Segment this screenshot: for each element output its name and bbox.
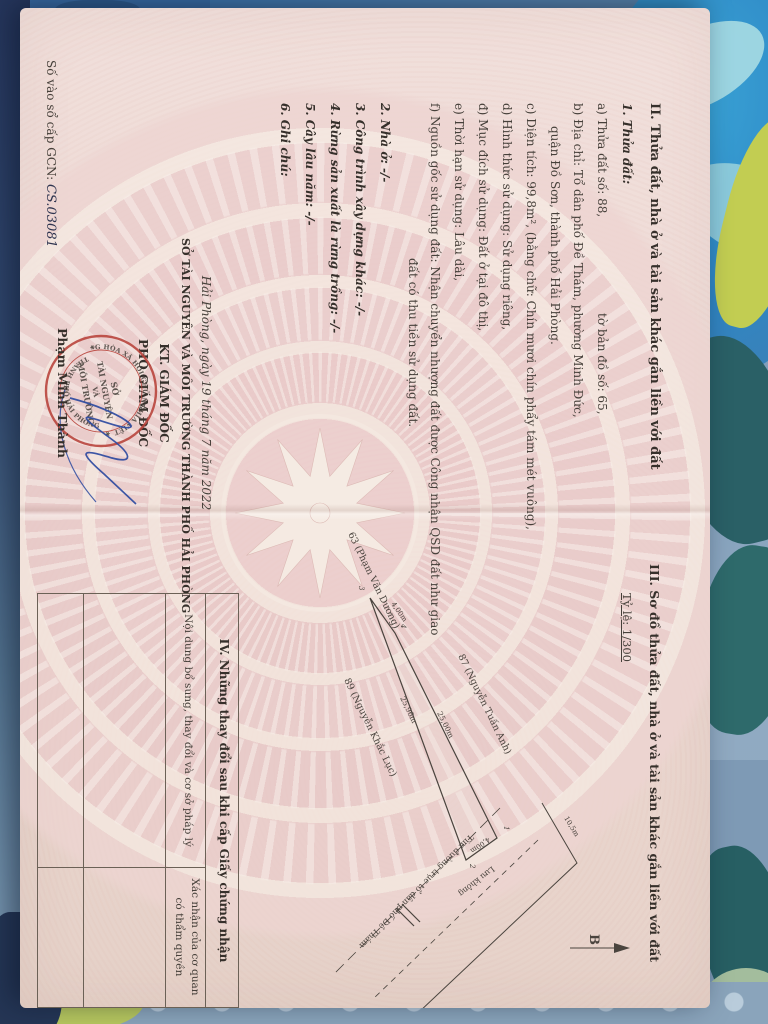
section-ii-heading: II. Thửa đất, nhà ở và tài sản khác gắn … <box>647 103 662 470</box>
north-arrow-icon: B <box>570 934 630 953</box>
area-line: c) Diện tích: 99,8m², (bằng chữ: Chín mư… <box>524 103 538 530</box>
reserve-strip-label: Lưu không <box>457 864 497 898</box>
photo-of-certificate: II. Thửa đất, nhà ở và tài sản khác gắn … <box>0 0 768 1024</box>
gcn-number-line: Số vào sổ cấp GCN: CS.03081 <box>43 60 58 248</box>
table-col2-header-line2: có thẩm quyền <box>173 869 185 1005</box>
table-line <box>165 594 166 1007</box>
neighbor-89-label: 89 (Nguyễn Khắc Lục) <box>341 676 399 779</box>
road-boundary-line <box>418 803 577 1008</box>
item-6-notes: 6. Ghi chú: <box>278 103 292 177</box>
gcn-number-label: Số vào sổ cấp GCN: <box>44 60 58 180</box>
item-2-house: 2. Nhà ở: -/- <box>378 103 392 182</box>
vertex-1-label: 1 <box>502 826 510 830</box>
table-col1-header: Nội dung bổ sung, thay đổi và cơ sở pháp… <box>182 598 194 863</box>
item-3-constructions: 3. Công trình xây dựng khác: -/- <box>353 103 367 316</box>
item-1-title: 1. Thửa đất: <box>620 103 634 184</box>
changes-table: IV. Những thay đổi sau khi cấp Giấy chứn… <box>37 593 239 1008</box>
neighbor-63-label: 63 (Phạm Văn Dương) <box>345 530 401 630</box>
parcel-polygon <box>370 598 497 860</box>
use-purpose-line: đ) Mục đích sử dụng: Đất ở tại đô thị, <box>476 103 490 331</box>
table-line <box>205 594 206 1007</box>
use-term-line: e) Thời hạn sử dụng: Lâu dài, <box>452 103 466 281</box>
address-line-1: b) Địa chỉ: Tổ dân phố Đề Thám, phường M… <box>571 103 585 418</box>
table-line <box>83 594 84 1007</box>
parcel-diagram: B 1 2 3 4 4,00m 25,00m 25,96m 4,00m 87 (… <box>240 508 640 1008</box>
item-5-perennial: 5. Cây lâu năm: -/- <box>303 103 317 226</box>
vertex-2-label: 2 <box>468 863 476 869</box>
use-origin-line-2: đất có thu tiền sử dụng đất. <box>406 258 420 427</box>
address-line-2: quận Đồ Sơn, thành phố Hải Phòng. <box>548 126 562 345</box>
north-label: B <box>586 934 601 945</box>
section-iv-heading: IV. Những thay đổi sau khi cấp Giấy chứn… <box>217 594 231 1007</box>
item-4-forest: 4. Rừng sản xuất là rừng trồng: -/- <box>328 103 342 333</box>
gcn-number-value: CS.03081 <box>43 184 58 248</box>
map-sheet-line: tờ bản đồ số: 65, <box>595 313 609 415</box>
dim-road-offset: 10,5m <box>562 815 580 838</box>
table-column-divider <box>38 867 206 868</box>
parcel-number-line: a) Thửa đất số: 88, <box>595 103 609 217</box>
neighbor-87-label: 87 (Nguyễn Tuấn Anh) <box>455 652 514 756</box>
stamp-star-left: ✱ <box>88 344 96 350</box>
road-edge-dashed <box>372 840 538 1000</box>
date-line: Hải Phòng, ngày 19 tháng 7 năm 2022 <box>199 258 213 528</box>
certificate-document: II. Thửa đất, nhà ở và tài sản khác gắn … <box>20 8 710 1008</box>
vertex-3-label: 3 <box>357 586 365 591</box>
use-form-line: d) Hình thức sử dụng: Sử dụng riêng, <box>500 103 514 330</box>
agency-name: SỞ TÀI NGUYÊN VÀ MÔI TRƯỜNG THÀNH PHỐ HẢ… <box>179 238 192 548</box>
signer-name: Phạm Minh Thành <box>55 293 70 493</box>
table-col2-header-line1: Xác nhận của cơ quan <box>189 869 201 1005</box>
section-iii-heading: III. Sơ đồ thửa đất, nhà ở và tài sản kh… <box>647 533 662 993</box>
